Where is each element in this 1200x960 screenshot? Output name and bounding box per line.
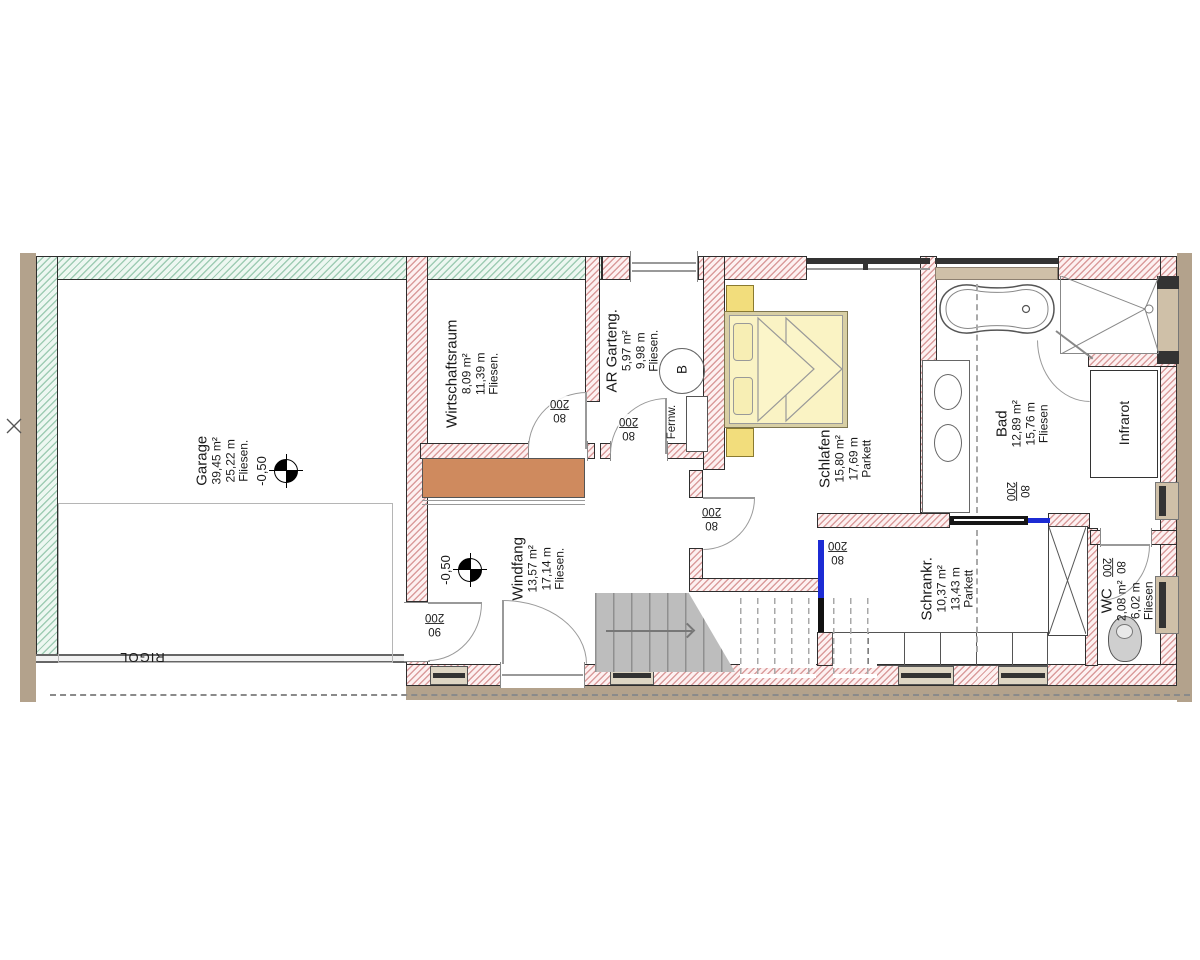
window-schlafen-innerline — [807, 268, 930, 270]
wall-wirtschaftsraum-ar — [585, 256, 600, 402]
room-name: Schrankr. — [918, 504, 935, 674]
room-floor: Parkett — [962, 504, 976, 674]
room-perimeter: 6,02 m — [1129, 516, 1143, 686]
room-floor: Fliesen — [1037, 339, 1051, 509]
level-value: -0,50 — [438, 555, 453, 585]
sliding-door-schrankraum — [818, 540, 824, 600]
sliding-door-schrankraum-panel — [818, 598, 824, 632]
boiler-label: B — [675, 360, 690, 380]
room-area: 5,97 m² — [620, 266, 634, 436]
bed-pillow-bottom — [733, 377, 753, 415]
infrarot-label: Infrarot — [1116, 373, 1132, 473]
room-perimeter: 11,39 m — [474, 289, 488, 459]
level-value: -0,50 — [254, 456, 269, 486]
room-label-ar-garteng: AR Garteng. 5,97 m² 9,98 m Fliesen. — [603, 266, 661, 436]
door-width: 80 — [702, 517, 721, 531]
window-bottom-schrank-b — [998, 666, 1048, 685]
door-height: 200 — [619, 414, 638, 427]
window-schlafen-top — [807, 258, 930, 264]
nightstand-bottom — [726, 428, 754, 457]
exterior-strip-left — [20, 253, 36, 702]
door-width: 90 — [425, 623, 444, 637]
level-symbol-icon — [274, 459, 298, 483]
window-schlafen-mullion — [863, 258, 868, 270]
room-area: 8,09 m² — [460, 289, 474, 459]
dashed-line-site-bottom — [50, 694, 1190, 696]
window-bad-top — [935, 258, 1058, 264]
room-name: Windfang — [509, 484, 526, 654]
room-floor: Fliesen. — [487, 289, 501, 459]
door-tag-schlafen: 80 200 — [701, 504, 722, 531]
bed-pillow-top — [733, 323, 753, 361]
room-label-windfang: Windfang 13,57 m² 17,14 m Fliesen. — [509, 484, 567, 654]
dashed-line-bad — [976, 284, 980, 513]
room-area: 2,08 m² — [1115, 516, 1129, 686]
door-height: 200 — [550, 396, 569, 409]
site-marker — [6, 418, 22, 434]
dashed-line-schrankraum — [976, 530, 980, 652]
wardrobe-cabinet — [1048, 526, 1088, 636]
washbasin-1 — [934, 374, 962, 410]
room-name: AR Garteng. — [603, 266, 620, 436]
room-name: Garage — [193, 376, 210, 546]
level-symbol-icon — [458, 558, 482, 582]
door-width: 80 — [619, 427, 638, 441]
window-shower-cap-top — [1157, 276, 1179, 289]
exterior-strip-bottom — [406, 686, 1177, 700]
wall-garage-house-upper — [406, 256, 428, 602]
fernwaerme-label: Fernw. — [666, 392, 678, 452]
room-area: 39,45 m² — [210, 376, 224, 546]
door-width: 80 — [550, 409, 569, 423]
door-leaf-garage — [428, 602, 482, 604]
room-name: WC — [1098, 516, 1115, 686]
floor-plan: Garage 39,45 m² 25,22 m Fliesen. Wirtsch… — [0, 0, 1200, 960]
door-width: 80 — [828, 551, 847, 565]
door-width: 80 — [1016, 482, 1030, 501]
door-tag-bad-schiebetuer: 80 200 — [1003, 481, 1030, 502]
door-height: 200 — [425, 610, 444, 623]
staircase — [595, 593, 735, 672]
level-marker-garage: -0,50 — [244, 449, 308, 493]
room-perimeter: 17,69 m — [847, 374, 861, 544]
door-tag-wc: 80 200 — [1099, 557, 1126, 578]
door-height: 200 — [1099, 558, 1112, 577]
room-perimeter: 25,22 m — [224, 376, 238, 546]
stairs-dashed-schrank — [833, 594, 877, 678]
wall-garage-top — [36, 256, 602, 280]
entrance-threshold-line — [502, 674, 583, 676]
room-perimeter: 9,98 m — [634, 266, 648, 436]
room-area: 13,57 m² — [526, 484, 540, 654]
room-floor: Parkett — [860, 374, 874, 544]
window-wc-right-bar — [1159, 582, 1166, 628]
wall-below-sliding-door — [817, 632, 833, 666]
room-area: 10,37 m² — [935, 504, 949, 674]
room-name: Wirtschaftsraum — [443, 289, 460, 459]
room-label-wc: WC 2,08 m² 6,02 m Fliesen — [1098, 516, 1156, 686]
wall-hall-upper — [689, 470, 703, 498]
washbasin-2 — [934, 424, 962, 462]
room-area: 15,80 m² — [833, 374, 847, 544]
door-leaf-schlafen — [703, 497, 755, 499]
door-tag-wirtschaftsraum: 80 200 — [549, 396, 570, 423]
room-label-garage: Garage 39,45 m² 25,22 m Fliesen. — [193, 376, 251, 546]
door-tag-garage: 90 200 — [424, 610, 445, 637]
room-floor: Fliesen. — [647, 266, 661, 436]
door-tag-schrank-schiebetuer: 80 200 — [827, 538, 848, 565]
window-right-mid-bar — [1159, 486, 1166, 516]
door-leaf-wirtschaftsraum — [585, 392, 587, 449]
level-marker-windfang: -0,50 — [428, 548, 492, 592]
door-tag-ar: 80 200 — [618, 414, 639, 441]
room-label-schrankraum: Schrankr. 10,37 m² 13,43 m Parkett — [918, 504, 976, 674]
bathtub — [934, 276, 1060, 342]
window-bottom-windfang-left — [430, 666, 468, 685]
room-perimeter: 13,43 m — [949, 504, 963, 674]
garden-door-line1 — [632, 262, 696, 264]
door-width: 80 — [1112, 558, 1126, 577]
room-floor: Fliesen. — [553, 484, 567, 654]
room-perimeter: 17,14 m — [540, 484, 554, 654]
wall-garage-left — [36, 256, 58, 656]
room-label-wirtschaftsraum: Wirtschaftsraum 8,09 m² 11,39 m Fliesen. — [443, 289, 501, 459]
door-leaf-entrance — [502, 600, 504, 664]
room-name: Schlafen — [816, 374, 833, 544]
door-height: 200 — [828, 538, 847, 551]
fernwaerme-box — [686, 396, 708, 452]
sliding-door-bad-blue — [1028, 518, 1050, 523]
room-floor: Fliesen — [1142, 516, 1156, 686]
door-height: 200 — [702, 504, 721, 517]
rigol-label: RIGOL — [102, 650, 182, 665]
nightstand-top — [726, 285, 754, 312]
stairs-upper-flight-dashed — [740, 594, 816, 678]
door-height: 200 — [1003, 482, 1016, 501]
exterior-strip-right — [1177, 253, 1192, 702]
wall-stairs-north — [689, 578, 820, 592]
wall-hall-lower — [689, 548, 703, 582]
room-label-schlafen: Schlafen 15,80 m² 17,69 m Parkett — [816, 374, 874, 544]
window-shower-cap-bottom — [1157, 351, 1179, 364]
